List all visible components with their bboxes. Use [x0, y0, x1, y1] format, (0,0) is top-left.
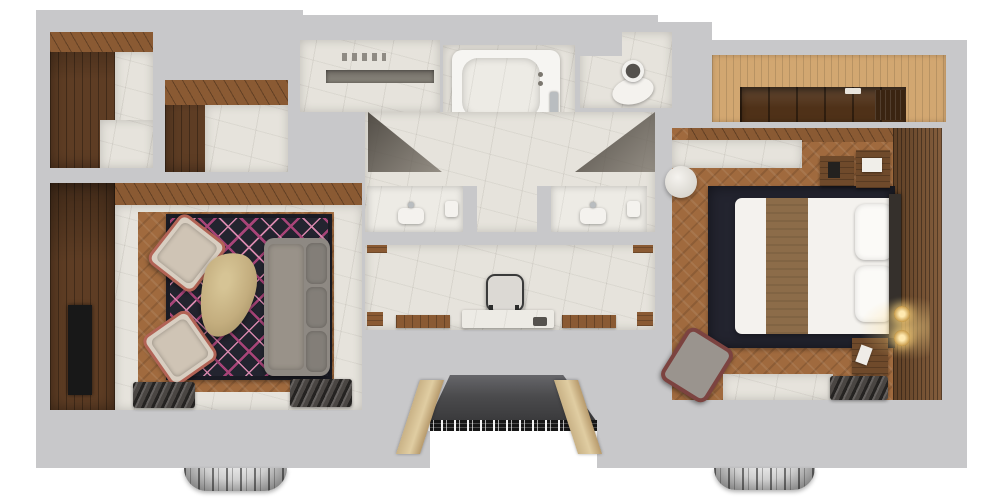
- living-drape-left: [133, 382, 195, 408]
- floorplan-canvas: [0, 0, 1000, 502]
- wardrobe-hanging-clothes: [875, 90, 905, 120]
- sofa: [264, 238, 330, 376]
- vanity-right-faucet: [590, 202, 596, 208]
- vanity-divider-left: [463, 186, 477, 232]
- vanity-left-faucet: [408, 202, 414, 208]
- wall-sconce-bottom: [894, 330, 910, 346]
- vanity-left-towel: [445, 201, 458, 217]
- room-wc: [580, 32, 672, 108]
- vanity-right: [551, 186, 647, 232]
- glass-door-shadow-left: [368, 112, 442, 172]
- nightstand-top-clock: [828, 162, 840, 178]
- dressing-table-tray: [533, 317, 547, 326]
- dressing-trim-bottom-right: [637, 312, 653, 326]
- sofa-cushion-3: [306, 331, 327, 372]
- dressing-trim-bottom-left: [367, 312, 383, 326]
- bathtub-basin: [462, 58, 540, 118]
- sofa-cushion-1: [306, 243, 327, 284]
- shower-niche: [326, 70, 434, 83]
- room-closet-two: [165, 80, 288, 172]
- desk-laptop: [862, 158, 882, 172]
- bathtub-controls: [538, 72, 543, 77]
- closet-two-floor: [205, 105, 288, 172]
- sconce-glow: [858, 296, 930, 360]
- room-dressing: [365, 245, 655, 330]
- dressing-mat-right: [562, 315, 616, 328]
- closet-one-top-panel: [50, 32, 153, 52]
- vanity-right-sink: [580, 208, 606, 224]
- vanity-left-sink: [398, 208, 424, 224]
- chandelier-right: [714, 468, 815, 490]
- room-shower: [300, 40, 440, 112]
- dressing-mat-left: [396, 315, 450, 328]
- bedroom-desk: [856, 150, 890, 188]
- closet-one-floor-lower: [100, 120, 153, 168]
- living-top-wall: [115, 183, 362, 205]
- wc-wall-notch: [580, 32, 622, 56]
- toilet-tank: [622, 60, 644, 82]
- tv-screen: [68, 305, 92, 395]
- shower-fixtures: [342, 53, 386, 61]
- living-drape-right: [290, 379, 352, 407]
- glass-door-shadow-right: [575, 112, 655, 172]
- room-living: [50, 183, 362, 410]
- bedroom-marble-bottom: [723, 374, 833, 400]
- round-side-table: [665, 166, 697, 198]
- chandelier-left: [184, 468, 287, 491]
- bed-pillow-top: [855, 204, 893, 260]
- bed-runner: [766, 198, 808, 334]
- room-bathroom-hall: [365, 112, 655, 232]
- vanity-divider-right: [537, 186, 551, 232]
- room-closet-one: [50, 32, 153, 168]
- sofa-seat: [268, 244, 304, 370]
- dressing-trim-top-left: [367, 245, 387, 253]
- bedroom-marble-walkway: [672, 140, 802, 168]
- vanity-left: [367, 186, 463, 232]
- room-bedroom: [672, 128, 942, 400]
- wall-sconce-top: [894, 306, 910, 322]
- bedroom-drape: [830, 376, 888, 400]
- dressing-trim-top-right: [633, 245, 653, 253]
- wardrobe-shelf-items: [845, 88, 861, 94]
- room-wardrobe: [712, 55, 946, 122]
- nightstand-top: [820, 156, 854, 186]
- closet-two-top-panel: [165, 80, 288, 105]
- sofa-cushion-2: [306, 287, 327, 328]
- vanity-right-towel: [627, 201, 640, 217]
